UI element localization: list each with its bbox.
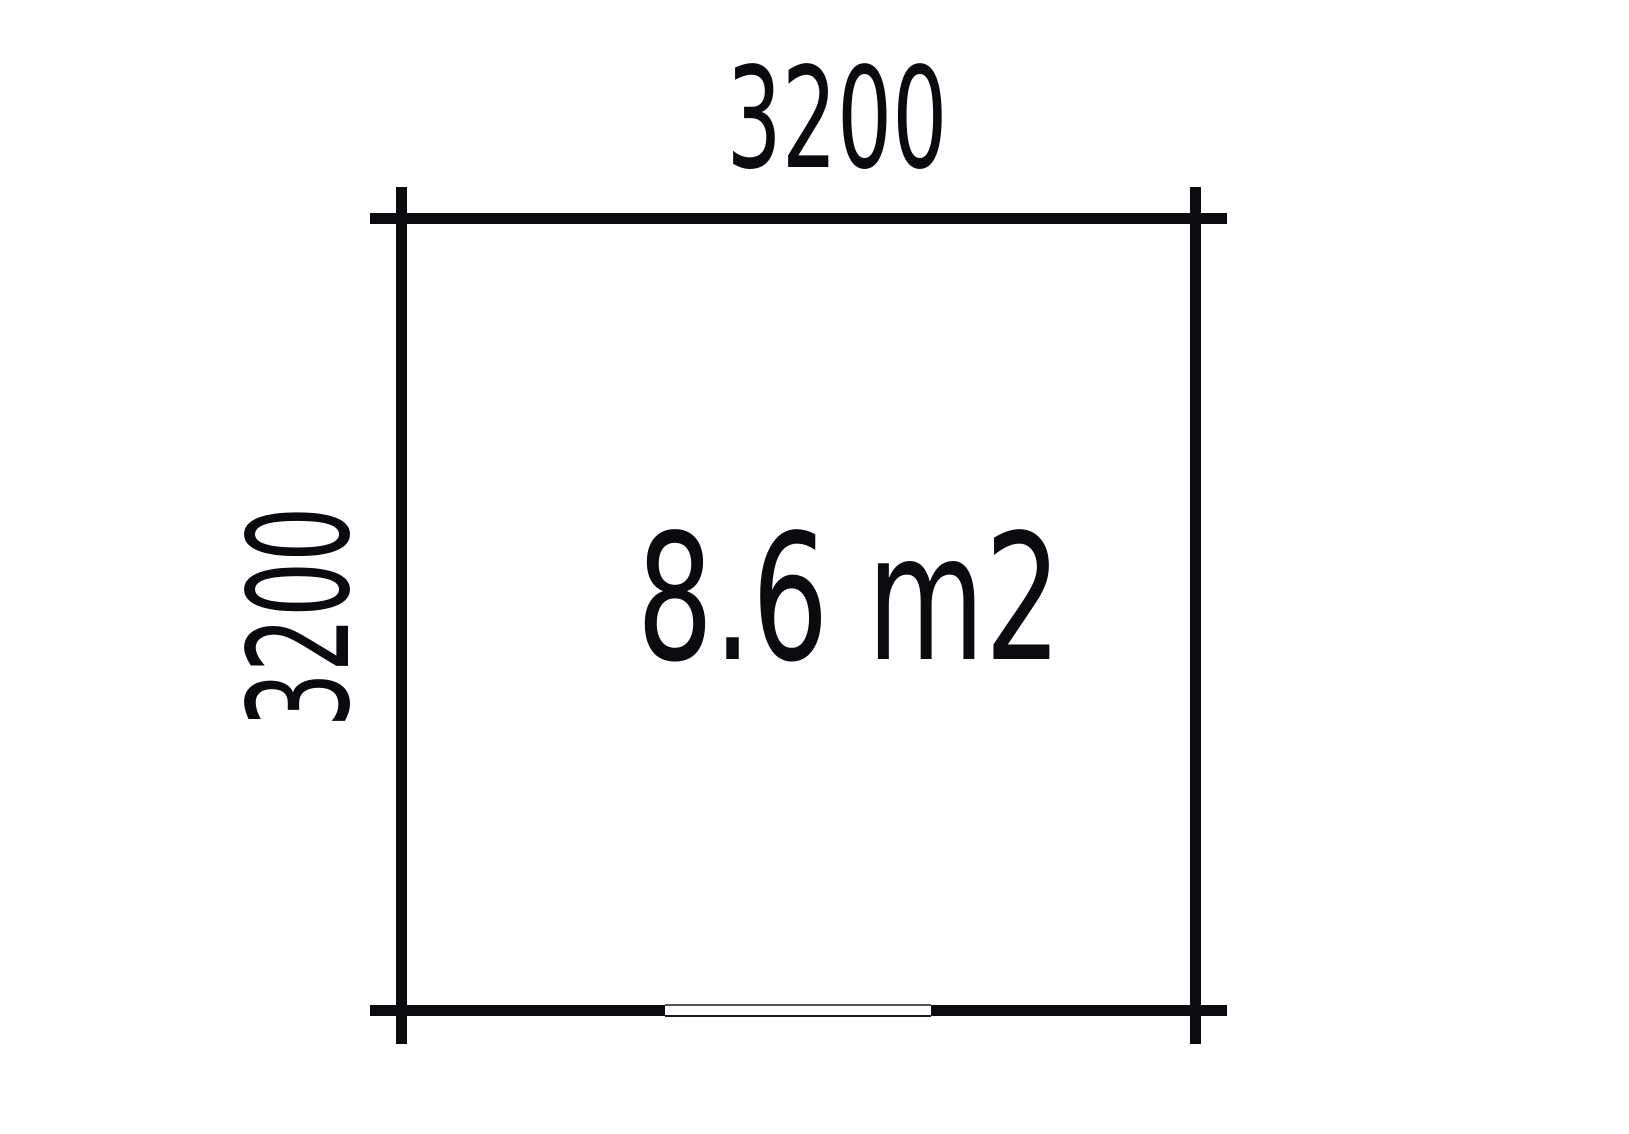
width-dimension-label: 3200 [724, 50, 951, 190]
wall-top [370, 213, 1227, 224]
wall-right [1190, 187, 1201, 1044]
window-opening [665, 1004, 931, 1017]
area-label: 8.6 m2 [635, 497, 1063, 701]
floor-plan: 3200 3200 8.6 m2 [0, 0, 1629, 1134]
wall-left [396, 187, 407, 1044]
height-dimension-label: 3200 [231, 504, 371, 731]
